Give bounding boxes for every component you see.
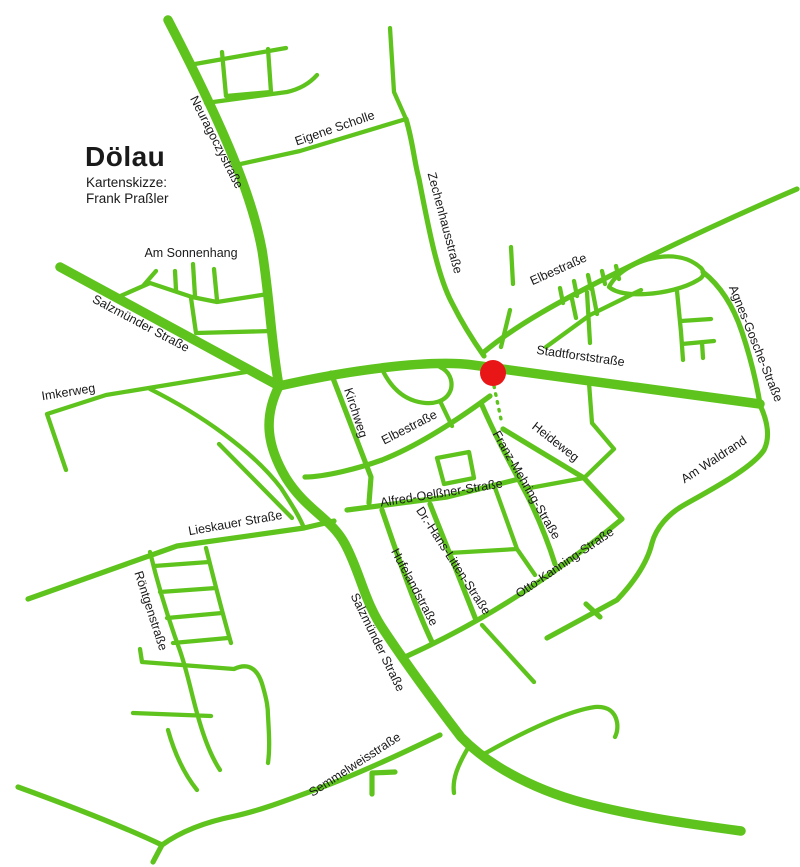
road-loop-leaf bbox=[609, 256, 703, 294]
road-se-arc bbox=[484, 707, 617, 754]
road-comb-settlement bbox=[546, 266, 641, 347]
map-canvas: Dölau Kartenskizze: Frank Praßler Neurag… bbox=[0, 0, 800, 867]
title-block: Dölau Kartenskizze: Frank Praßler bbox=[85, 141, 169, 206]
street-label-salzmuender-strasse-s: Salzmünder Straße bbox=[348, 591, 408, 694]
road-roentgen-quarter bbox=[133, 548, 269, 790]
road-otto-kanning-se-spur bbox=[482, 625, 534, 682]
street-label-elbestrasse-center: Elbestraße bbox=[379, 407, 439, 447]
road-south-hook bbox=[454, 748, 468, 793]
location-marker[interactable] bbox=[480, 360, 506, 386]
street-label-am-sonnenhang: Am Sonnenhang bbox=[144, 246, 237, 260]
road-salzmuender-strasse-nw bbox=[60, 267, 279, 386]
road-nw-connector-2 bbox=[219, 444, 292, 518]
subtitle-line1: Kartenskizze: bbox=[86, 175, 167, 190]
road-heideweg-north-zigzag bbox=[584, 383, 614, 478]
subtitle-line2: Frank Praßler bbox=[86, 191, 169, 206]
street-label-hufelandstrasse: Hufelandstraße bbox=[388, 546, 441, 628]
road-top-vertical bbox=[390, 28, 406, 119]
street-label-am-waldrand: Am Waldrand bbox=[678, 433, 749, 486]
street-label-semmelweisstrasse: Semmelweisstraße bbox=[306, 730, 403, 800]
road-topleft-block bbox=[195, 48, 317, 103]
page-title: Dölau bbox=[85, 141, 165, 172]
street-label-elbestrasse-ne: Elbestraße bbox=[528, 251, 589, 288]
marker-connector-dotted-line bbox=[494, 386, 502, 424]
street-label-zechenhausstrasse: Zechenhausstraße bbox=[425, 171, 466, 275]
street-label-stadtforststrasse: Stadtforststraße bbox=[536, 343, 626, 369]
road-loop-verticals bbox=[677, 291, 714, 360]
doelau-map: Dölau Kartenskizze: Frank Praßler Neurag… bbox=[0, 0, 800, 867]
street-label-salzmuender-strasse-nw: Salzmünder Straße bbox=[90, 292, 192, 355]
road-otto-kanning-strasse bbox=[405, 478, 622, 657]
road-lieskauer-strasse bbox=[28, 521, 334, 599]
